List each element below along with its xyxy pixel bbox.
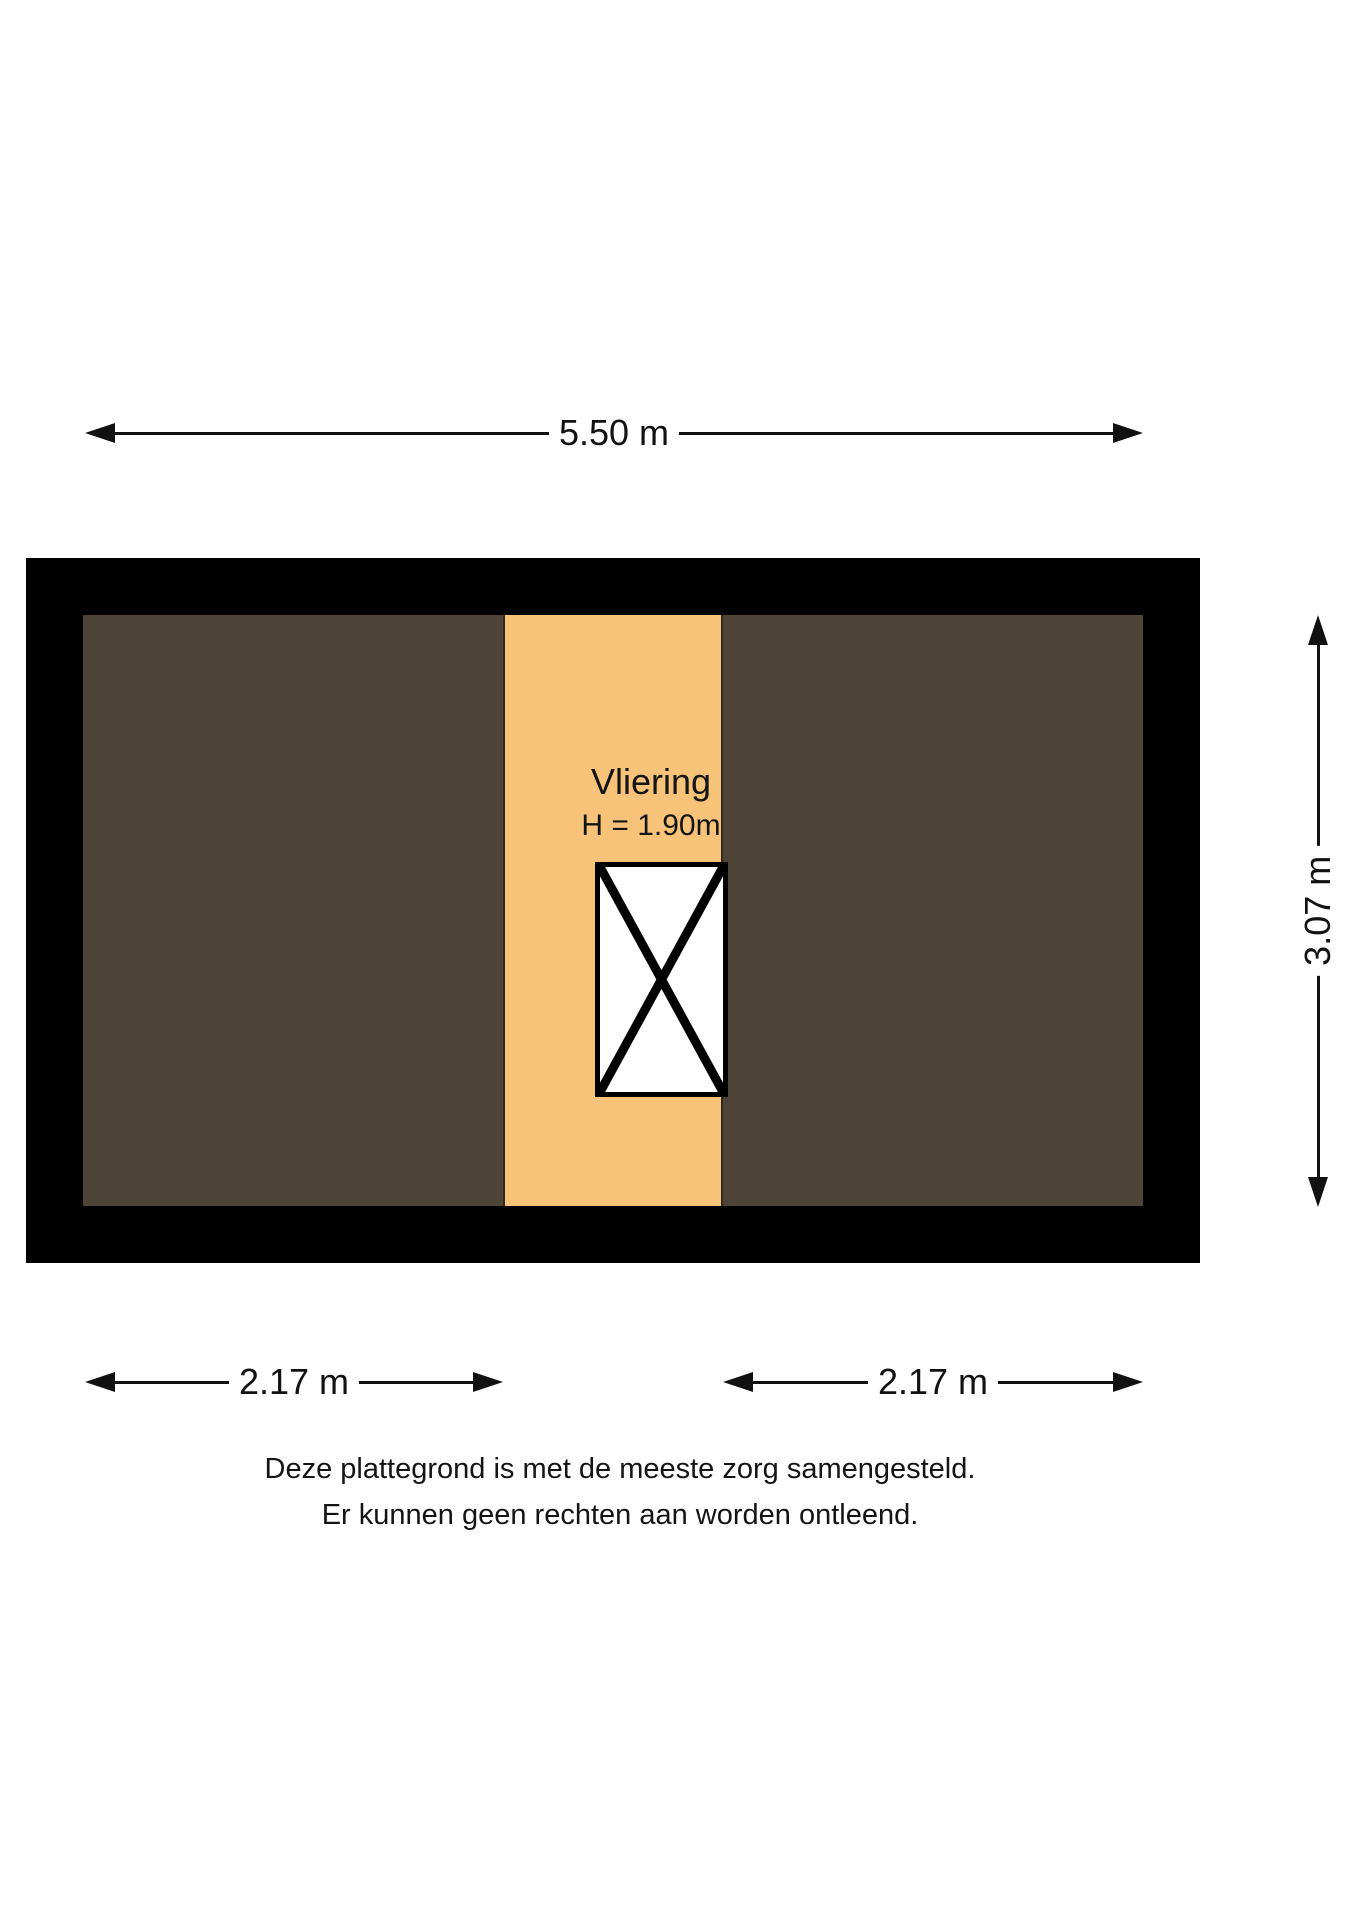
disclaimer-line-2: Er kunnen geen rechten aan worden ontlee… [0, 1492, 1240, 1538]
dimension-bottom-right: 2.17 m [723, 1357, 1143, 1407]
dimension-top: 5.50 m [85, 408, 1143, 458]
floorplan-page: 5.50 m Vliering H = 1.90m 3.07 m [0, 0, 1358, 1920]
arrowhead-up-icon [1308, 615, 1328, 645]
dimension-line [359, 1381, 473, 1384]
room-label-group: Vliering H = 1.90m [495, 760, 807, 844]
dimension-label-bottom-right: 2.17 m [868, 1362, 998, 1402]
arrowhead-left-icon [723, 1372, 753, 1392]
stairs-cross-icon [600, 867, 723, 1092]
dimension-line [115, 432, 549, 435]
disclaimer: Deze plattegrond is met de meeste zorg s… [0, 1446, 1240, 1539]
room-right-slope [723, 615, 1143, 1206]
floorplan: Vliering H = 1.90m [26, 558, 1200, 1263]
arrowhead-right-icon [1113, 423, 1143, 443]
dimension-label-bottom-left: 2.17 m [229, 1362, 359, 1402]
room-left-slope [83, 615, 503, 1206]
arrowhead-left-icon [85, 1372, 115, 1392]
disclaimer-line-1: Deze plattegrond is met de meeste zorg s… [0, 1446, 1240, 1492]
dimension-line [998, 1381, 1113, 1384]
arrowhead-right-icon [473, 1372, 503, 1392]
room-height-label: H = 1.90m [495, 808, 807, 844]
dimension-line [115, 1381, 229, 1384]
arrowhead-left-icon [85, 423, 115, 443]
arrowhead-right-icon [1113, 1372, 1143, 1392]
dimension-line [753, 1381, 868, 1384]
dimension-right: 3.07 m [1293, 615, 1343, 1207]
dimension-label-top: 5.50 m [549, 413, 679, 453]
arrowhead-down-icon [1308, 1177, 1328, 1207]
stair-opening [595, 862, 728, 1097]
room-name-label: Vliering [495, 760, 807, 803]
dimension-bottom-left: 2.17 m [85, 1357, 503, 1407]
dimension-label-right: 3.07 m [1298, 846, 1338, 976]
dimension-line [679, 432, 1113, 435]
